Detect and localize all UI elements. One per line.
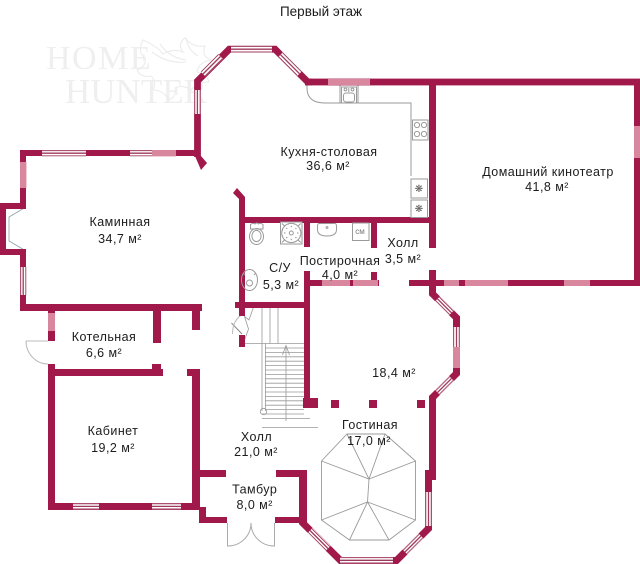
svg-text:Холл: Холл: [387, 236, 418, 250]
svg-text:3,5 м²: 3,5 м²: [385, 252, 421, 266]
svg-text:21,0 м²: 21,0 м²: [234, 445, 278, 459]
svg-text:Холл: Холл: [241, 430, 272, 444]
svg-text:6,6 м²: 6,6 м²: [86, 346, 122, 360]
svg-text:18,4 м²: 18,4 м²: [372, 366, 416, 380]
svg-text:Кабинет: Кабинет: [88, 424, 139, 438]
svg-text:см: см: [355, 227, 365, 236]
svg-text:17,0 м²: 17,0 м²: [347, 434, 391, 448]
svg-text:Тамбур: Тамбур: [232, 483, 277, 497]
svg-text:Котельная: Котельная: [72, 330, 137, 344]
svg-text:Каминная: Каминная: [90, 215, 151, 229]
svg-text:❋: ❋: [415, 204, 423, 215]
svg-text:Постирочная: Постирочная: [300, 254, 381, 268]
svg-text:Первый этаж: Первый этаж: [280, 4, 362, 19]
svg-text:41,8 м²: 41,8 м²: [525, 180, 569, 194]
svg-text:Кухня-столовая: Кухня-столовая: [280, 145, 377, 159]
svg-text:4,0 м²: 4,0 м²: [322, 268, 358, 282]
svg-text:Гостиная: Гостиная: [342, 418, 398, 432]
svg-text:С/У: С/У: [269, 261, 291, 275]
svg-text:5,3 м²: 5,3 м²: [263, 278, 299, 292]
svg-text:HUNTER: HUNTER: [65, 72, 208, 111]
svg-text:❋: ❋: [415, 184, 423, 195]
svg-text:19,2 м²: 19,2 м²: [91, 441, 135, 455]
svg-text:8,0 м²: 8,0 м²: [237, 498, 273, 512]
svg-text:Домашний кинотеатр: Домашний кинотеатр: [482, 165, 614, 179]
svg-text:36,6 м²: 36,6 м²: [306, 159, 350, 173]
svg-text:34,7 м²: 34,7 м²: [98, 232, 142, 246]
